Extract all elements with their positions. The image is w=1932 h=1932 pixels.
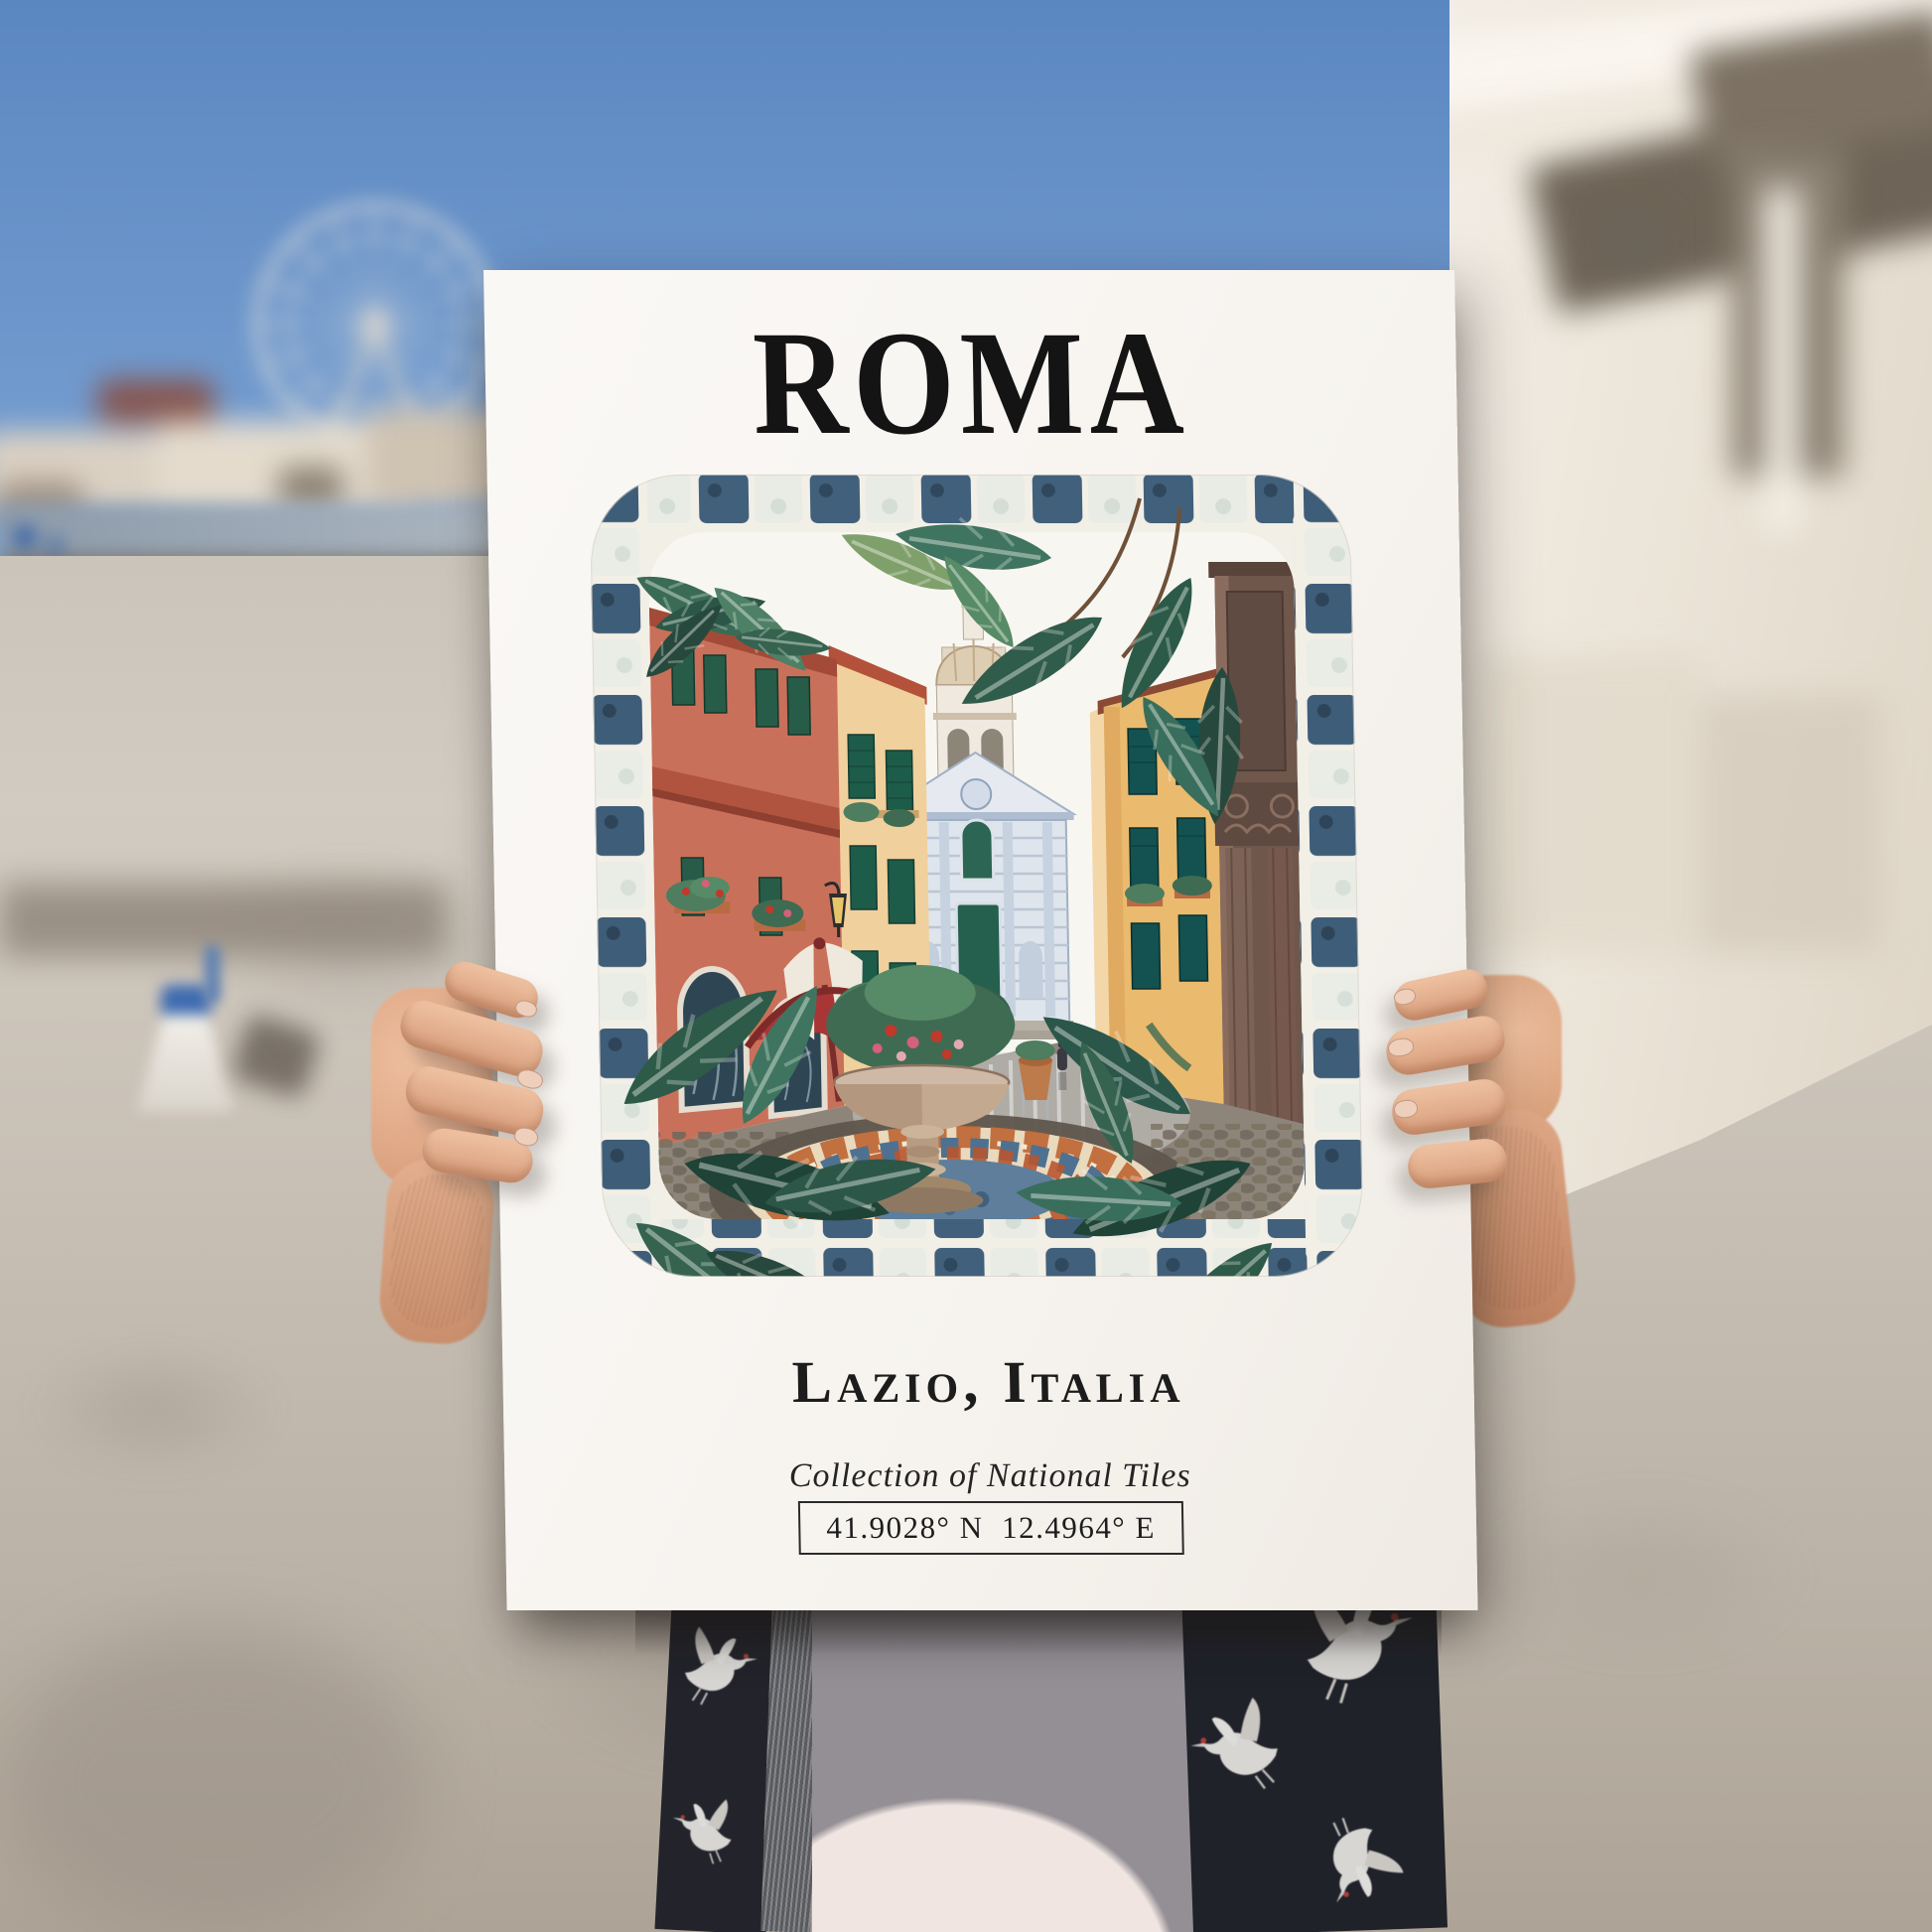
buoy (48, 538, 63, 553)
pavement-shadow-band (0, 884, 447, 957)
poster-collection-line: Collection of National Tiles (504, 1457, 1476, 1495)
torso (635, 1587, 1442, 1932)
distant-pole (205, 945, 220, 1003)
bollard (127, 985, 244, 1116)
building-pillar (1765, 189, 1799, 531)
skyline-shadow (278, 467, 344, 508)
travel-poster: ROMA (483, 270, 1478, 1610)
building-base (1477, 655, 1701, 953)
buoy (14, 526, 36, 548)
left-forearm (377, 1156, 497, 1346)
building-window (1606, 216, 1658, 268)
skyline-roof (97, 379, 214, 423)
poster-artwork (583, 469, 1369, 1283)
photo-scene: ROMA (0, 0, 1932, 1932)
pavement-dark-patch (0, 1628, 427, 1932)
poster-title: ROMA (542, 302, 1400, 466)
bollard-body (137, 1015, 234, 1112)
poster-subtitle: Lazio, Italia (502, 1348, 1474, 1417)
building-base (1698, 695, 1881, 953)
poster-coordinates: 41.9028° N 12.4964° E (798, 1501, 1184, 1555)
